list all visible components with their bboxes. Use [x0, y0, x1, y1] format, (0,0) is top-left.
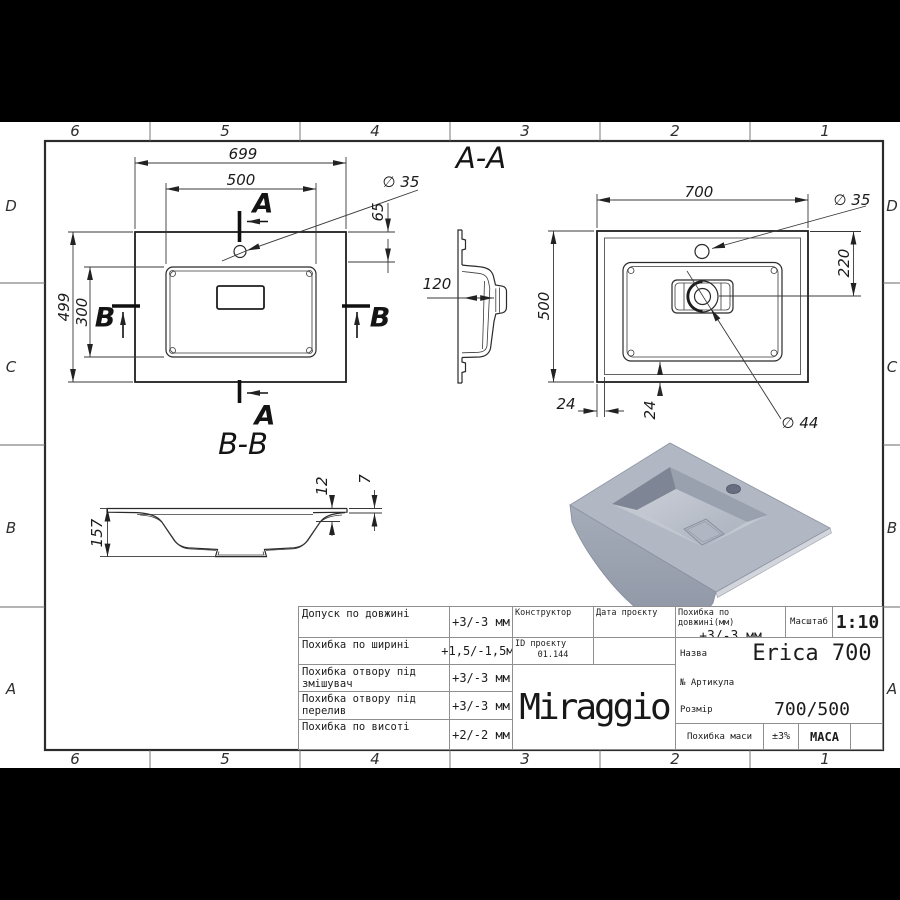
tolerance-row-label: Похибка отвору під змішувач: [298, 664, 450, 692]
zone-row-a-right: A: [886, 680, 897, 698]
length-tolerance-label: Похибка по довжині(мм): [676, 607, 785, 629]
dim-24-horizontal: 24: [556, 395, 575, 413]
zone-col-5-top: 5: [220, 122, 230, 140]
mass-label: МАСА: [798, 723, 851, 750]
letterbox-bottom: [0, 768, 900, 900]
zone-row-d-right: D: [886, 197, 898, 215]
scale-value: 1:10: [832, 606, 883, 638]
zone-col-4-bottom: 4: [370, 750, 380, 768]
dim-499: 499: [55, 293, 73, 322]
dim-7: 7: [356, 474, 374, 484]
tolerance-row-label: Похибка по висоті: [298, 719, 450, 750]
project-date-cell: Дата проєкту: [593, 606, 676, 638]
mass-tolerance-value: ±3%: [763, 723, 799, 750]
section-label-b-left: B: [95, 303, 116, 334]
dim-d35-right: ∅ 35: [834, 191, 871, 209]
tolerance-row-label: Допуск по довжині: [298, 606, 450, 638]
zone-col-2-bottom: 2: [670, 750, 680, 768]
zone-col-5-bottom: 5: [220, 750, 230, 768]
zone-col-4-top: 4: [370, 122, 380, 140]
dim-699: 699: [229, 145, 258, 163]
zone-col-2-top: 2: [670, 122, 680, 140]
dim-24-vertical: 24: [641, 400, 659, 419]
dim-700: 700: [685, 183, 714, 201]
zone-row-a-left: A: [5, 680, 16, 698]
zone-col-6-bottom: 6: [70, 750, 80, 768]
zone-col-6-top: 6: [70, 122, 80, 140]
dim-120: 120: [423, 275, 452, 293]
brand-logo: Miraggio: [512, 664, 676, 750]
dim-220: 220: [835, 249, 853, 278]
zone-col-3-top: 3: [520, 122, 530, 140]
mass-tolerance-label: Похибка маси: [675, 723, 764, 750]
tolerance-row-label: Похибка по ширині: [298, 637, 450, 665]
zone-row-c-right: C: [887, 358, 898, 376]
tolerance-row-value: +3/-3 мм: [449, 606, 513, 638]
zone-row-d-left: D: [5, 197, 17, 215]
project-id-label: ID проєкту: [513, 638, 593, 650]
article-label: № Артикула: [676, 678, 742, 688]
dim-500-right: 500: [535, 292, 553, 321]
tolerance-row-label: Похибка отвору під перелив: [298, 691, 450, 720]
dim-500-left: 500: [227, 171, 256, 189]
size-value: 700/500: [742, 699, 882, 720]
project-id-value: 01.144: [513, 650, 593, 660]
scale-label: Масштаб: [785, 606, 833, 638]
dim-157: 157: [88, 518, 106, 547]
letterbox-top: [0, 0, 900, 122]
dim-d35-left: ∅ 35: [383, 173, 420, 191]
zone-col-1-top: 1: [820, 122, 830, 140]
zone-col-1-bottom: 1: [820, 750, 830, 768]
dim-65: 65: [369, 202, 387, 221]
name-label: Назва: [676, 649, 742, 659]
drawing-canvas: 6 5 4 3 2 1 6 5 4 3 2 1 D C B A D C B A …: [0, 0, 900, 900]
dim-d44: ∅ 44: [782, 414, 819, 432]
mass-value-empty: [850, 723, 883, 750]
dim-300: 300: [73, 298, 91, 327]
section-label-a-top: A: [251, 189, 274, 220]
zone-row-b-right: B: [887, 519, 897, 537]
empty-cell: [593, 637, 676, 665]
section-label-b-right: B: [370, 303, 391, 334]
render-faucet-hole: [727, 484, 741, 493]
dim-12: 12: [313, 476, 331, 495]
constructor-cell: Конструктор: [512, 606, 594, 638]
cad-drawing-sheet: 6 5 4 3 2 1 6 5 4 3 2 1 D C B A D C B A …: [0, 0, 900, 900]
section-title-a-a: A-A: [454, 141, 506, 175]
section-title-b-b: B-B: [218, 427, 268, 461]
zone-row-c-left: C: [6, 358, 17, 376]
tolerance-row-value: +1,5/-1,5мм: [449, 637, 513, 665]
tolerance-row-value: +2/-2 мм: [449, 719, 513, 750]
tolerance-row-value: +3/-3 мм: [449, 664, 513, 692]
tolerance-row-value: +3/-3 мм: [449, 691, 513, 720]
size-label: Розмір: [676, 705, 742, 715]
zone-col-3-bottom: 3: [520, 750, 530, 768]
name-value: Erica 700: [742, 641, 882, 666]
zone-row-b-left: B: [6, 519, 16, 537]
title-block: Допуск по довжині +3/-3 мм Похибка по ши…: [298, 606, 883, 750]
